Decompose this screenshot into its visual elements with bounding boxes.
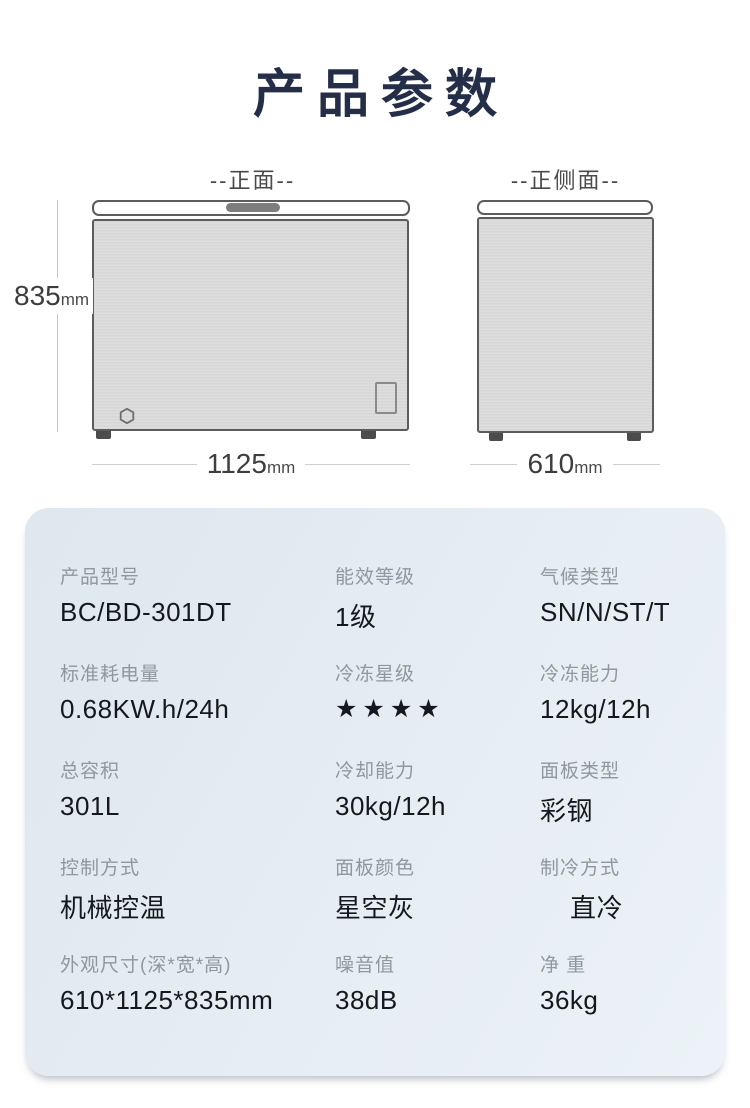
front-width-dimension: 1125mm [92,448,410,480]
height-value: 835 [14,280,61,311]
spec-value: 301L [60,791,335,822]
spec-cell-net-weight: 净 重 36kg [540,950,725,1047]
spec-cell-cooling-method: 制冷方式 直冷 [540,853,725,950]
spec-label: 控制方式 [60,853,335,880]
spec-cell-panel-color: 面板颜色 星空灰 [335,853,540,950]
spec-label: 面板类型 [540,756,725,783]
spec-cell-panel-type: 面板类型 彩钢 [540,756,725,853]
spec-value: 1级 [335,597,540,634]
height-dimension-line [57,200,58,432]
spec-value: 彩钢 [540,791,725,828]
height-dimension-label: 835mm [10,278,93,314]
spec-cell-model: 产品型号 BC/BD-301DT [60,562,335,659]
spec-label: 冷冻能力 [540,659,725,686]
spec-label: 冷冻星级 [335,659,540,686]
freezer-side-lid [477,200,653,215]
spec-row: 标准耗电量 0.68KW.h/24h 冷冻星级 ★★★★ 冷冻能力 12kg/1… [60,659,725,756]
spec-label: 外观尺寸(深*宽*高) [60,950,335,977]
spec-cell-freezer-star-rating: 冷冻星级 ★★★★ [335,659,540,756]
spec-label: 产品型号 [60,562,335,589]
front-width-unit: mm [267,458,295,477]
drain-plug-icon [118,407,136,425]
front-width-value: 1125 [207,448,267,479]
spec-value: 机械控温 [60,888,335,925]
freezer-foot [361,431,376,439]
spec-label: 制冷方式 [540,853,725,880]
spec-value: 38dB [335,985,540,1016]
spec-value: 0.68KW.h/24h [60,694,335,725]
spec-row: 产品型号 BC/BD-301DT 能效等级 1级 气候类型 SN/N/ST/T [60,562,725,659]
spec-value: 12kg/12h [540,694,725,725]
spec-cell-control-method: 控制方式 机械控温 [60,853,335,950]
spec-label: 面板颜色 [335,853,540,880]
side-width-unit: mm [574,458,602,477]
spec-value: 直冷 [540,888,725,925]
spec-label: 总容积 [60,756,335,783]
freezer-side-body [477,217,654,433]
spec-row: 外观尺寸(深*宽*高) 610*1125*835mm 噪音值 38dB 净 重 … [60,950,725,1047]
spec-cell-freezing-capacity: 冷冻能力 12kg/12h [540,659,725,756]
dimension-rule [305,464,410,465]
product-parameters-page: 产品参数 --正面-- --正侧面-- 835mm 1125mm 610mm [0,0,750,1108]
spec-value: 星空灰 [335,888,540,925]
dimension-rule [613,464,660,465]
side-view-label: --正侧面-- [477,163,654,195]
spec-label: 标准耗电量 [60,659,335,686]
spec-value: SN/N/ST/T [540,597,725,628]
spec-value: 610*1125*835mm [60,985,335,1016]
spec-label: 噪音值 [335,950,540,977]
spec-value: 36kg [540,985,725,1016]
spec-row: 控制方式 机械控温 面板颜色 星空灰 制冷方式 直冷 [60,853,725,950]
freezer-foot [489,433,503,441]
spec-label: 气候类型 [540,562,725,589]
side-width-dimension: 610mm [470,448,660,480]
freezer-handle [226,203,280,212]
spec-cell-cooling-capacity: 冷却能力 30kg/12h [335,756,540,853]
side-width-label: 610mm [517,448,612,480]
front-view-label: --正面-- [95,163,410,195]
freezer-front-body [92,219,409,431]
dimension-diagram: --正面-- --正侧面-- 835mm 1125mm 610mm [0,0,750,500]
spec-cell-dimensions: 外观尺寸(深*宽*高) 610*1125*835mm [60,950,335,1047]
thermostat-panel [375,382,397,414]
dimension-rule [92,464,197,465]
spec-card: 产品型号 BC/BD-301DT 能效等级 1级 气候类型 SN/N/ST/T … [25,508,725,1076]
spec-row: 总容积 301L 冷却能力 30kg/12h 面板类型 彩钢 [60,756,725,853]
spec-label: 净 重 [540,950,725,977]
spec-label: 冷却能力 [335,756,540,783]
freezer-foot [96,431,111,439]
dimension-rule [470,464,517,465]
front-width-label: 1125mm [197,448,306,480]
spec-cell-power-consumption: 标准耗电量 0.68KW.h/24h [60,659,335,756]
side-width-value: 610 [527,448,574,479]
spec-cell-noise-level: 噪音值 38dB [335,950,540,1047]
spec-value: BC/BD-301DT [60,597,335,628]
spec-cell-total-volume: 总容积 301L [60,756,335,853]
freezer-foot [627,433,641,441]
spec-value: 30kg/12h [335,791,540,822]
spec-cell-climate-type: 气候类型 SN/N/ST/T [540,562,725,659]
spec-label: 能效等级 [335,562,540,589]
spec-cell-energy-rating: 能效等级 1级 [335,562,540,659]
height-unit: mm [61,290,89,309]
star-rating: ★★★★ [335,694,540,724]
